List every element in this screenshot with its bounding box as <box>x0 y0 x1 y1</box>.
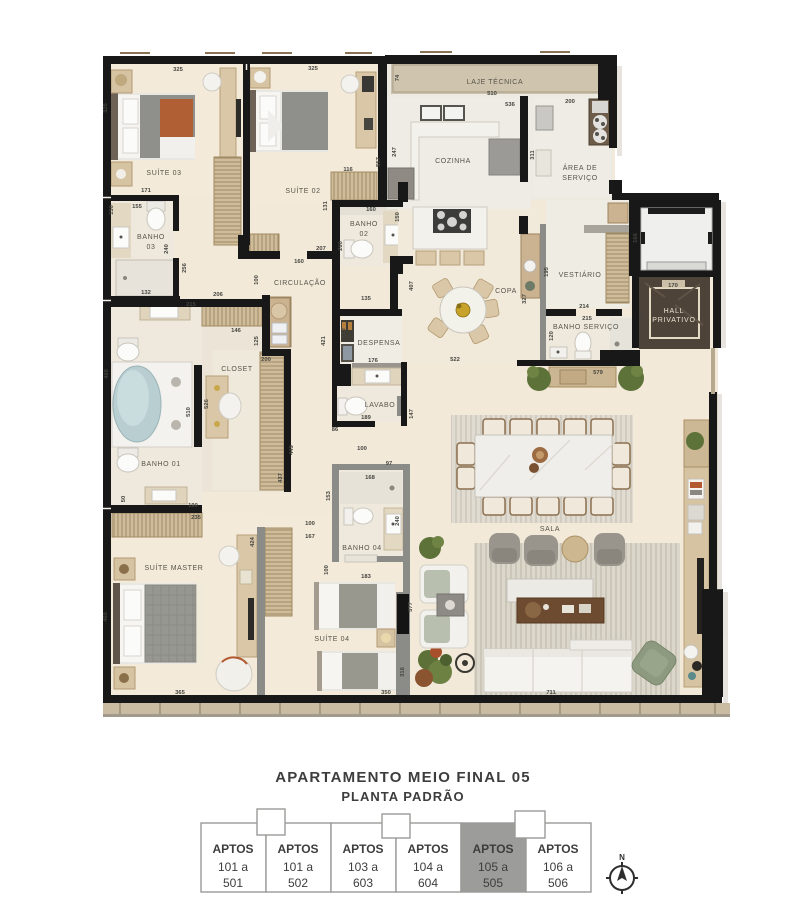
svg-text:APTOS: APTOS <box>407 842 448 856</box>
svg-text:135: 135 <box>361 296 371 302</box>
svg-text:165: 165 <box>639 310 645 320</box>
svg-text:100: 100 <box>324 565 330 575</box>
svg-text:505: 505 <box>483 876 503 890</box>
svg-text:526: 526 <box>204 398 210 408</box>
svg-text:190: 190 <box>188 503 198 509</box>
svg-text:155: 155 <box>132 204 142 210</box>
svg-text:603: 603 <box>353 876 373 890</box>
svg-text:579: 579 <box>593 370 603 376</box>
svg-text:424: 424 <box>250 536 256 546</box>
svg-text:604: 604 <box>418 876 438 890</box>
svg-text:449: 449 <box>289 444 295 454</box>
svg-text:BANHO SERVIÇO: BANHO SERVIÇO <box>553 324 619 331</box>
svg-text:123: 123 <box>341 327 347 337</box>
svg-text:132: 132 <box>141 290 151 296</box>
svg-text:167: 167 <box>305 534 315 540</box>
svg-text:PLANTA PADRÃO: PLANTA PADRÃO <box>341 789 464 804</box>
svg-text:153: 153 <box>326 490 332 500</box>
svg-text:SUÍTE 02: SUÍTE 02 <box>285 186 320 195</box>
svg-text:501: 501 <box>223 876 243 890</box>
svg-text:APTOS: APTOS <box>277 842 318 856</box>
svg-text:365: 365 <box>175 690 185 696</box>
svg-text:247: 247 <box>392 147 398 157</box>
svg-text:103 a: 103 a <box>348 860 378 874</box>
svg-text:BANHO 01: BANHO 01 <box>141 461 180 468</box>
svg-text:171: 171 <box>141 188 151 194</box>
svg-text:407: 407 <box>409 281 415 291</box>
svg-text:CLOSET: CLOSET <box>221 366 253 373</box>
svg-text:50: 50 <box>121 496 127 502</box>
svg-text:125: 125 <box>254 335 260 345</box>
svg-text:166: 166 <box>633 232 639 242</box>
svg-text:BANHO 04: BANHO 04 <box>342 545 381 552</box>
svg-text:SUÍTE 03: SUÍTE 03 <box>146 168 181 177</box>
svg-text:460: 460 <box>104 369 110 379</box>
svg-text:BANHO: BANHO <box>350 221 378 228</box>
svg-text:74: 74 <box>395 74 401 81</box>
svg-text:200: 200 <box>261 357 271 363</box>
svg-text:BANHO: BANHO <box>137 234 165 241</box>
svg-text:APTOS: APTOS <box>472 842 513 856</box>
svg-text:86: 86 <box>332 427 339 433</box>
svg-text:97: 97 <box>386 461 392 467</box>
svg-text:ÁREA DE: ÁREA DE <box>563 163 598 172</box>
svg-text:183: 183 <box>361 574 371 580</box>
svg-text:325: 325 <box>173 67 183 73</box>
svg-text:195: 195 <box>544 266 550 276</box>
svg-text:168: 168 <box>365 475 375 481</box>
svg-text:DESPENSA: DESPENSA <box>358 340 401 347</box>
svg-text:260: 260 <box>338 241 344 251</box>
svg-text:214: 214 <box>579 304 589 310</box>
svg-text:SERVIÇO: SERVIÇO <box>562 175 598 182</box>
svg-text:170: 170 <box>668 283 678 289</box>
svg-text:327: 327 <box>522 294 528 304</box>
svg-text:SUÍTE MASTER: SUÍTE MASTER <box>145 563 204 572</box>
svg-text:APTOS: APTOS <box>537 842 578 856</box>
svg-text:215: 215 <box>186 302 196 308</box>
svg-text:LAJE TÉCNICA: LAJE TÉCNICA <box>467 77 523 86</box>
svg-text:206: 206 <box>213 292 223 298</box>
svg-text:160: 160 <box>366 207 376 213</box>
svg-text:150: 150 <box>395 212 401 222</box>
svg-text:240: 240 <box>164 244 170 254</box>
svg-text:316: 316 <box>400 666 406 676</box>
svg-text:235: 235 <box>191 515 201 521</box>
svg-text:VESTIÁRIO: VESTIÁRIO <box>559 270 602 279</box>
svg-text:APTOS: APTOS <box>212 842 253 856</box>
svg-text:160: 160 <box>294 259 304 265</box>
svg-text:350: 350 <box>381 690 391 696</box>
svg-text:510: 510 <box>487 91 497 97</box>
svg-text:101 a: 101 a <box>283 860 313 874</box>
svg-text:PRIVATIVO: PRIVATIVO <box>652 317 696 324</box>
svg-text:150: 150 <box>109 205 115 215</box>
svg-text:215: 215 <box>582 316 592 322</box>
svg-text:421: 421 <box>321 335 327 345</box>
svg-text:COZINHA: COZINHA <box>435 158 471 165</box>
svg-text:SALA: SALA <box>540 526 560 533</box>
svg-text:SUÍTE 04: SUÍTE 04 <box>314 634 349 643</box>
svg-text:116: 116 <box>343 167 353 173</box>
svg-text:437: 437 <box>278 473 284 483</box>
svg-text:LAVABO: LAVABO <box>365 402 396 409</box>
svg-text:506: 506 <box>548 876 568 890</box>
svg-text:100: 100 <box>305 521 315 527</box>
svg-text:02: 02 <box>360 231 369 238</box>
svg-text:131: 131 <box>323 200 329 210</box>
svg-text:176: 176 <box>368 358 378 364</box>
svg-text:311: 311 <box>530 150 536 160</box>
svg-text:711: 711 <box>546 690 556 696</box>
svg-text:104 a: 104 a <box>413 860 443 874</box>
svg-text:510: 510 <box>186 407 192 417</box>
svg-text:200: 200 <box>565 99 575 105</box>
svg-text:COPA: COPA <box>495 288 517 295</box>
svg-text:536: 536 <box>505 102 515 108</box>
svg-text:120: 120 <box>549 331 555 341</box>
svg-text:577: 577 <box>408 602 414 612</box>
svg-text:522: 522 <box>450 357 460 363</box>
svg-text:106 a: 106 a <box>543 860 573 874</box>
svg-text:100: 100 <box>357 446 367 452</box>
svg-text:03: 03 <box>147 244 156 251</box>
svg-text:256: 256 <box>182 262 188 272</box>
svg-text:325: 325 <box>103 102 109 112</box>
svg-text:240: 240 <box>395 516 401 526</box>
svg-text:147: 147 <box>409 409 415 419</box>
svg-text:207: 207 <box>316 246 326 252</box>
svg-text:100: 100 <box>254 275 260 285</box>
svg-text:N: N <box>619 853 625 862</box>
svg-text:189: 189 <box>361 415 371 421</box>
svg-text:557: 557 <box>376 157 382 167</box>
svg-text:105 a: 105 a <box>478 860 508 874</box>
svg-text:325: 325 <box>308 66 318 72</box>
svg-text:460: 460 <box>103 612 109 622</box>
svg-text:APARTAMENTO MEIO FINAL 05: APARTAMENTO MEIO FINAL 05 <box>275 769 531 786</box>
svg-text:CIRCULAÇÃO: CIRCULAÇÃO <box>274 278 326 287</box>
svg-text:502: 502 <box>288 876 308 890</box>
svg-text:146: 146 <box>231 328 241 334</box>
svg-text:HALL: HALL <box>664 308 685 315</box>
svg-text:101 a: 101 a <box>218 860 248 874</box>
svg-text:APTOS: APTOS <box>342 842 383 856</box>
